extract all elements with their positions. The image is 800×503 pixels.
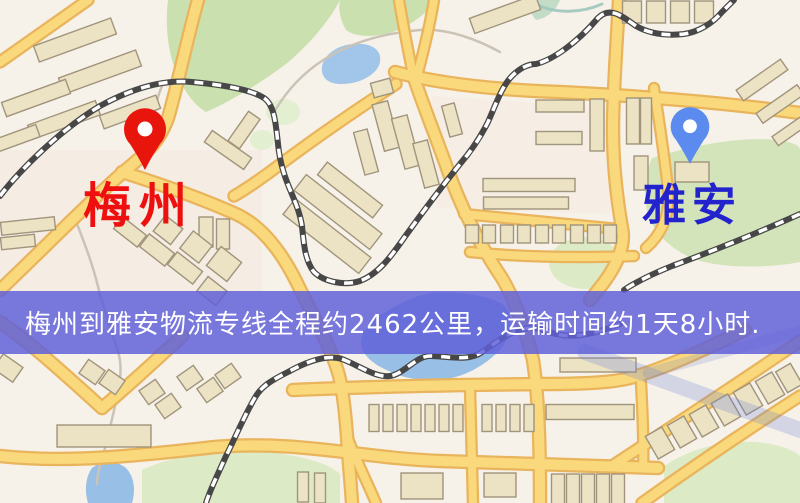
building xyxy=(397,405,407,432)
origin-city-label: 梅州 xyxy=(83,180,195,233)
map-page: 梅州雅安 梅州到雅安物流专线全程约2462公里，运输时间约1天8小时. xyxy=(0,0,800,503)
building xyxy=(675,162,709,182)
building xyxy=(483,225,496,243)
building xyxy=(641,98,652,144)
building xyxy=(0,234,35,249)
building xyxy=(590,99,604,151)
building xyxy=(597,474,610,503)
route-info-banner: 梅州到雅安物流专线全程约2462公里，运输时间约1天8小时. xyxy=(0,291,800,354)
building xyxy=(425,405,435,432)
building xyxy=(582,474,595,503)
building xyxy=(536,225,549,243)
building xyxy=(439,405,449,432)
building xyxy=(369,405,379,432)
building xyxy=(571,225,584,243)
building xyxy=(604,225,617,243)
building xyxy=(501,225,514,243)
building xyxy=(298,472,309,502)
building xyxy=(411,405,421,432)
building xyxy=(57,425,151,447)
building xyxy=(627,98,640,144)
building xyxy=(484,473,516,497)
building xyxy=(383,405,393,432)
building xyxy=(484,197,569,209)
building xyxy=(588,225,601,243)
building xyxy=(466,225,479,243)
road xyxy=(470,388,473,503)
building xyxy=(612,474,625,503)
park-patch xyxy=(250,130,274,150)
route-info-text: 梅州到雅安物流专线全程约2462公里，运输时间约1天8小时. xyxy=(25,304,761,341)
building xyxy=(496,405,506,432)
building xyxy=(315,473,326,503)
building xyxy=(524,405,534,432)
building xyxy=(217,219,230,249)
building xyxy=(510,405,520,432)
building xyxy=(518,225,531,243)
building xyxy=(536,132,582,145)
map-canvas[interactable]: 梅州雅安 xyxy=(0,0,800,503)
building xyxy=(483,179,575,192)
destination-pin-hole xyxy=(683,119,697,133)
building xyxy=(401,473,443,499)
origin-pin-hole xyxy=(138,122,153,137)
building xyxy=(482,405,492,432)
building xyxy=(552,474,565,503)
building xyxy=(567,474,580,503)
building xyxy=(546,405,634,420)
building xyxy=(536,100,584,112)
building xyxy=(671,1,690,23)
building xyxy=(647,1,666,23)
building xyxy=(453,405,463,432)
road xyxy=(641,383,643,468)
destination-city-label: 雅安 xyxy=(642,181,742,230)
building xyxy=(553,225,566,243)
